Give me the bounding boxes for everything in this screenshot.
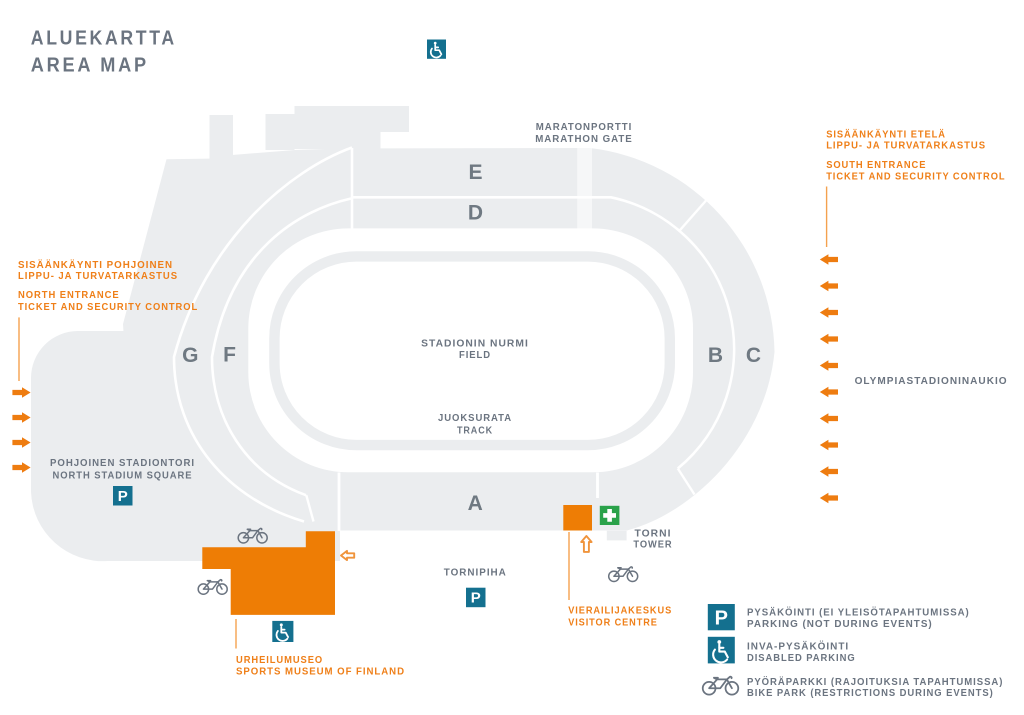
svg-text:MARATONPORTTI: MARATONPORTTI <box>536 122 633 133</box>
svg-text:SISÄÄNKÄYNTI ETELÄ: SISÄÄNKÄYNTI ETELÄ <box>826 128 946 141</box>
svg-text:SISÄÄNKÄYNTI POHJOINEN: SISÄÄNKÄYNTI POHJOINEN <box>18 258 173 271</box>
svg-text:VIERAILIJAKESKUS: VIERAILIJAKESKUS <box>568 606 672 617</box>
svg-text:P: P <box>715 608 728 630</box>
svg-text:URHEILUMUSEO: URHEILUMUSEO <box>236 655 323 666</box>
svg-text:OLYMPIASTADIONINAUKIO: OLYMPIASTADIONINAUKIO <box>855 376 1008 387</box>
svg-text:JUOKSURATA: JUOKSURATA <box>438 413 512 424</box>
svg-text:TICKET AND SECURITY CONTROL: TICKET AND SECURITY CONTROL <box>826 172 1005 183</box>
svg-text:LIPPU- JA TURVATARKASTUS: LIPPU- JA TURVATARKASTUS <box>18 271 178 282</box>
svg-text:P: P <box>471 590 481 607</box>
svg-text:A: A <box>468 492 483 515</box>
svg-text:G: G <box>182 344 198 367</box>
svg-text:SPORTS MUSEUM OF FINLAND: SPORTS MUSEUM OF FINLAND <box>236 667 405 678</box>
svg-text:PYÖRÄPARKKI (RAJOITUKSIA TAPAH: PYÖRÄPARKKI (RAJOITUKSIA TAPAHTUMISSA) <box>747 675 1003 688</box>
svg-text:FIELD: FIELD <box>459 350 491 361</box>
svg-text:STADIONIN NURMI: STADIONIN NURMI <box>421 339 529 350</box>
svg-text:E: E <box>468 161 482 184</box>
svg-text:PARKING (NOT DURING EVENTS): PARKING (NOT DURING EVENTS) <box>747 619 933 630</box>
svg-text:B: B <box>708 344 723 367</box>
svg-text:D: D <box>468 201 483 224</box>
svg-text:LIPPU- JA TURVATARKASTUS: LIPPU- JA TURVATARKASTUS <box>826 140 986 151</box>
svg-text:SOUTH ENTRANCE: SOUTH ENTRANCE <box>826 160 926 171</box>
svg-text:TORNIPIHA: TORNIPIHA <box>444 567 507 578</box>
svg-text:MARATHON GATE: MARATHON GATE <box>535 134 633 145</box>
svg-text:TRACK: TRACK <box>457 425 493 436</box>
svg-text:AREA MAP: AREA MAP <box>31 55 149 77</box>
svg-text:NORTH ENTRANCE: NORTH ENTRANCE <box>18 290 120 301</box>
svg-text:DISABLED PARKING: DISABLED PARKING <box>747 653 856 664</box>
svg-text:NORTH STADIUM SQUARE: NORTH STADIUM SQUARE <box>53 470 193 481</box>
svg-text:ALUEKARTTA: ALUEKARTTA <box>31 28 177 50</box>
svg-text:POHJOINEN STADIONTORI: POHJOINEN STADIONTORI <box>50 458 195 469</box>
svg-text:VISITOR CENTRE: VISITOR CENTRE <box>568 617 658 628</box>
svg-text:TICKET AND SECURITY CONTROL: TICKET AND SECURITY CONTROL <box>18 302 198 313</box>
svg-text:BIKE PARK (RESTRICTIONS DURING: BIKE PARK (RESTRICTIONS DURING EVENTS) <box>747 688 994 699</box>
svg-text:INVA-PYSÄKÖINTI: INVA-PYSÄKÖINTI <box>747 640 849 653</box>
svg-text:F: F <box>223 344 236 367</box>
svg-text:C: C <box>746 344 761 367</box>
svg-text:PYSÄKÖINTI (EI YLEISÖTAPAHTUMI: PYSÄKÖINTI (EI YLEISÖTAPAHTUMISSA) <box>747 606 970 619</box>
svg-text:P: P <box>118 488 128 505</box>
svg-text:TORNI: TORNI <box>635 528 672 539</box>
svg-text:TOWER: TOWER <box>633 540 672 551</box>
